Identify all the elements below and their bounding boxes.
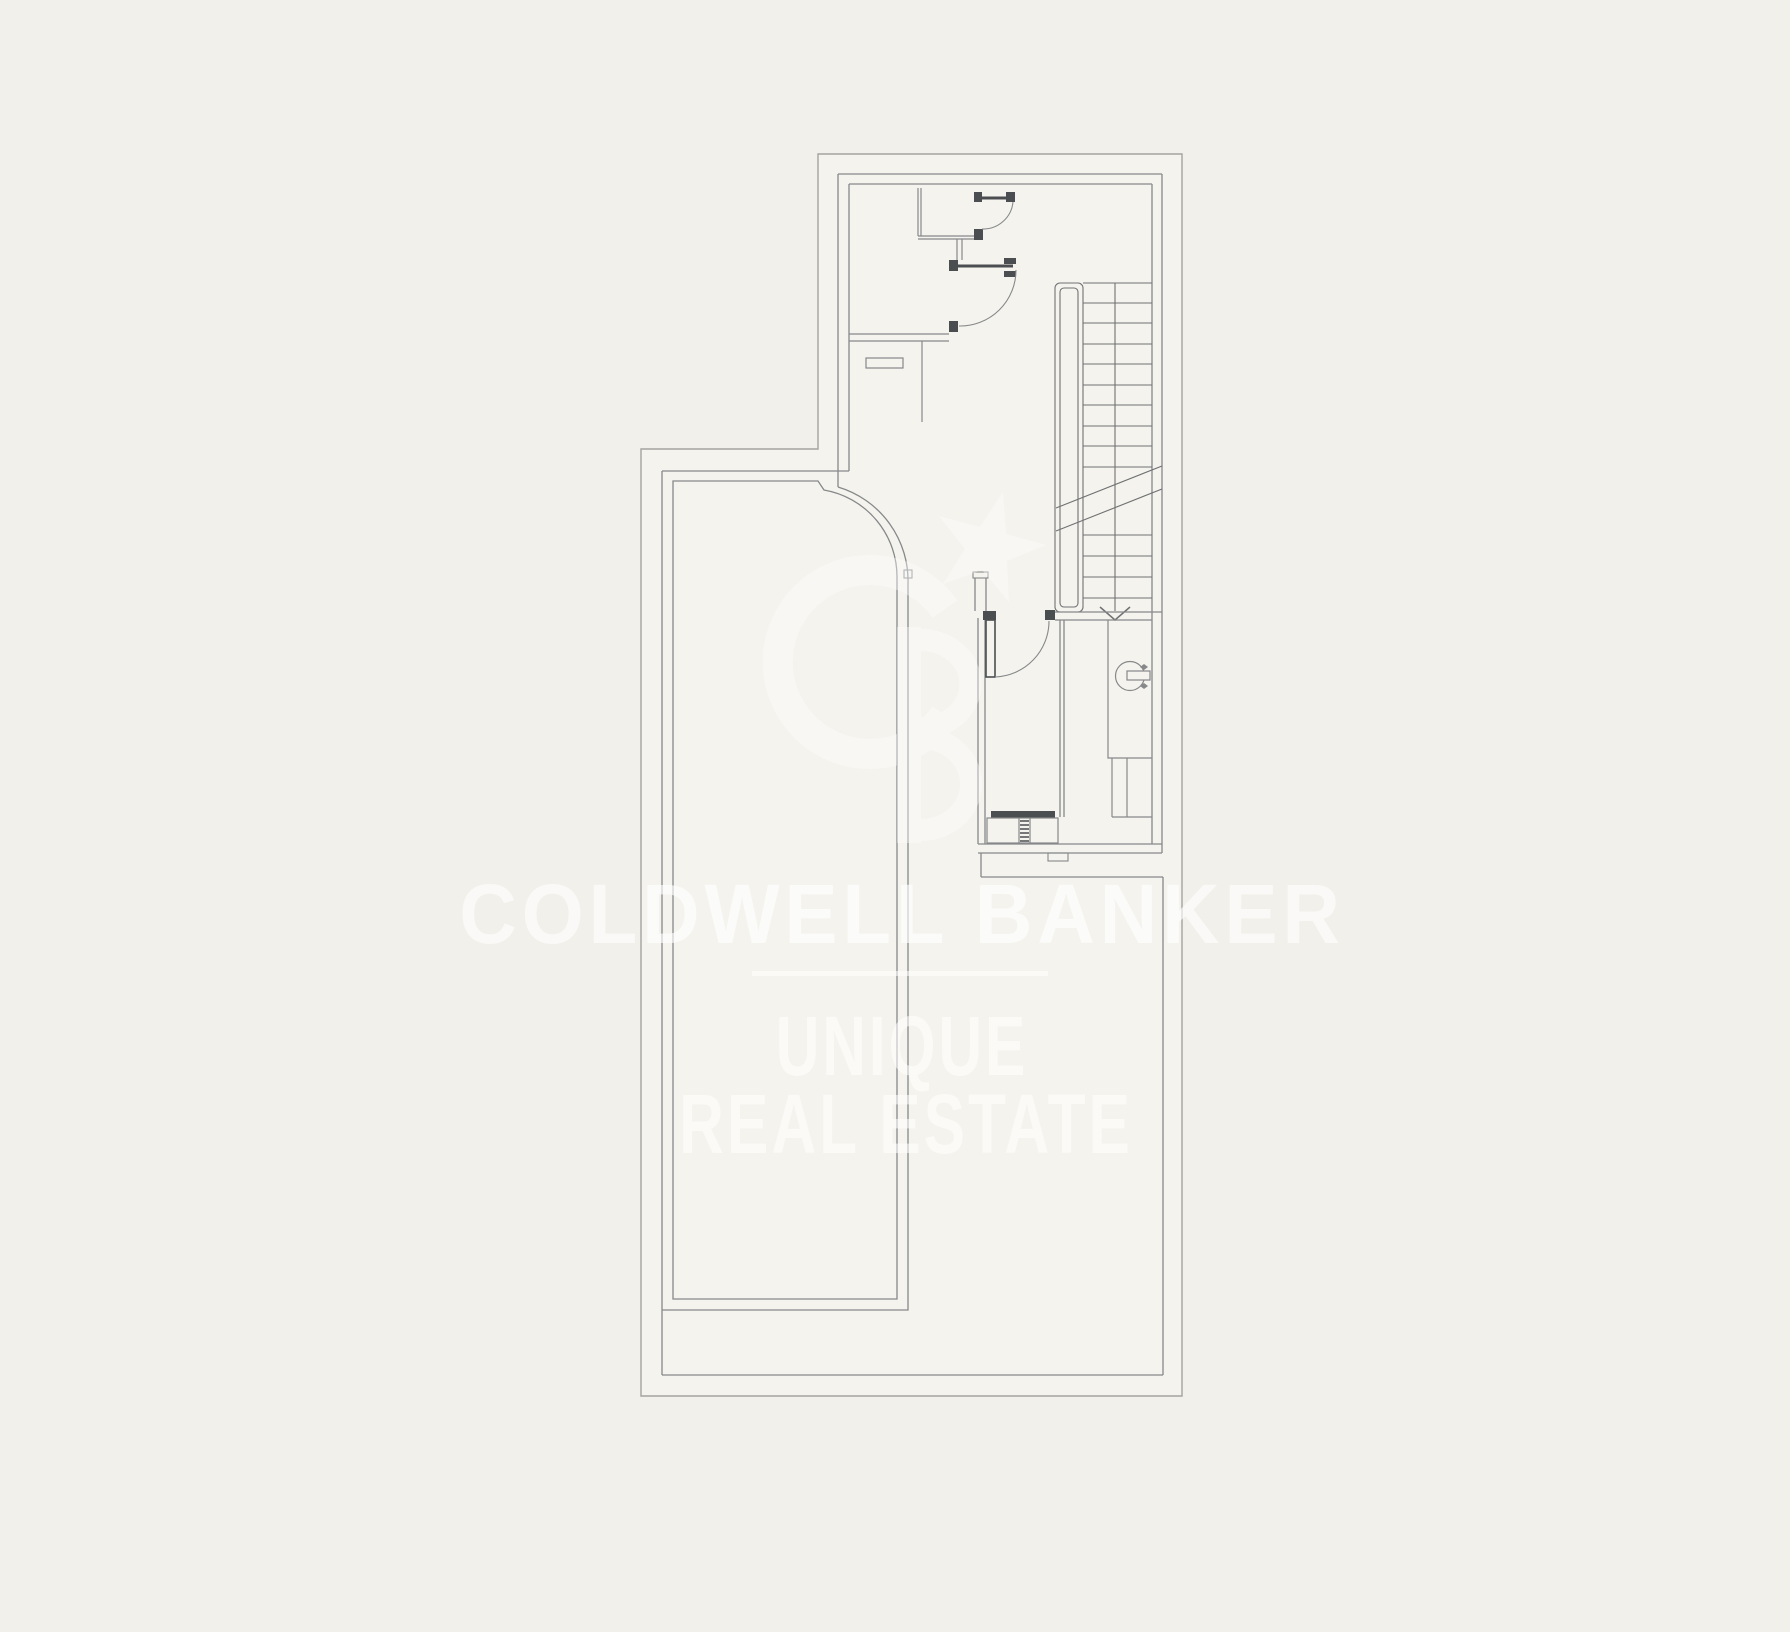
door-jamb-icon	[974, 229, 983, 240]
door-jamb-icon	[983, 611, 996, 620]
plan-interior	[641, 154, 1182, 1396]
door-leaf	[986, 620, 995, 677]
floor-plan-drawing	[0, 0, 1790, 1632]
door-latch-icon	[1004, 271, 1016, 277]
door-jamb-icon	[1045, 610, 1055, 620]
door-jamb-icon	[949, 260, 958, 271]
door-latch-icon	[1004, 258, 1016, 264]
door-jamb-icon	[949, 321, 958, 332]
appliance-dark-bar	[991, 811, 1055, 818]
door-jamb-icon	[974, 192, 982, 202]
floor-plan-image: COLDWELL BANKER UNIQUE REAL ESTATE	[0, 0, 1790, 1632]
